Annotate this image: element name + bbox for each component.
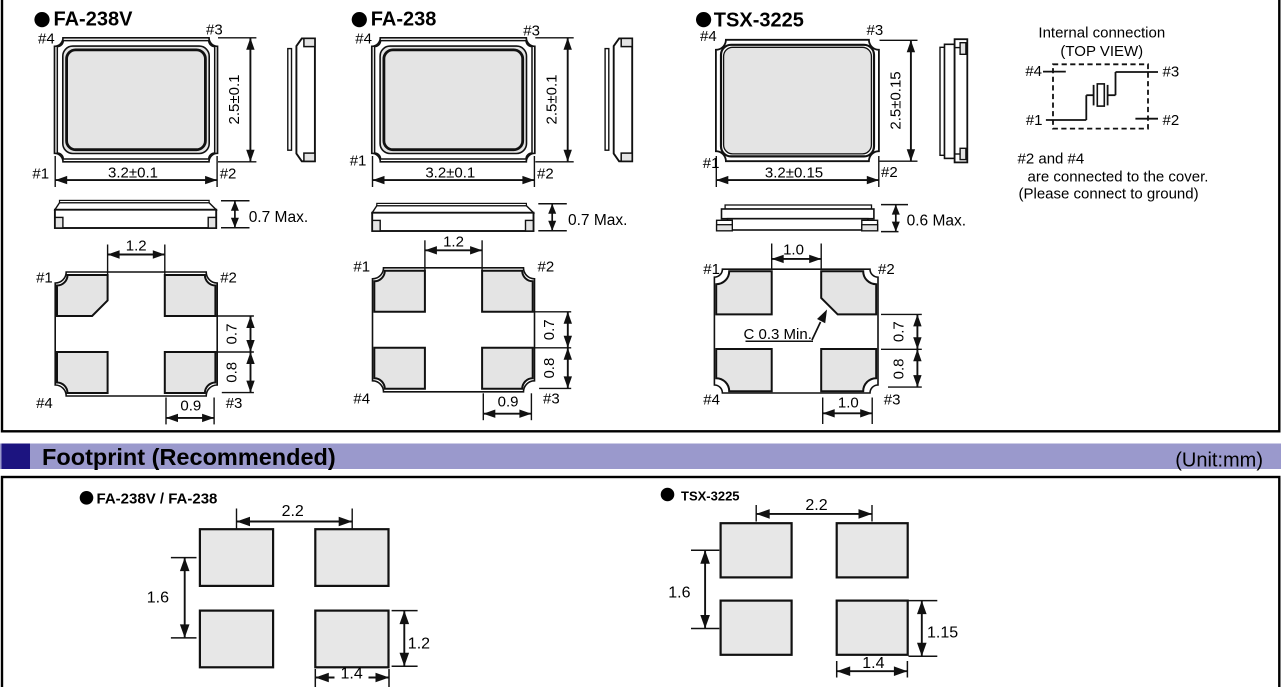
svg-text:#3: #3: [206, 21, 223, 38]
svg-text:#2: #2: [1163, 112, 1180, 129]
svg-text:0.6 Max.: 0.6 Max.: [907, 212, 966, 229]
svg-text:1.2: 1.2: [443, 233, 464, 250]
svg-text:2.5±0.1: 2.5±0.1: [543, 75, 560, 125]
svg-text:#1: #1: [32, 166, 49, 183]
svg-text:#3: #3: [1163, 64, 1180, 81]
svg-text:#4: #4: [355, 31, 372, 48]
svg-text:2.2: 2.2: [805, 497, 827, 514]
svg-text:1.6: 1.6: [668, 585, 690, 602]
svg-text:0.7 Max.: 0.7 Max.: [249, 209, 308, 226]
svg-text:#3: #3: [884, 391, 901, 408]
svg-text:TSX-3225: TSX-3225: [714, 9, 804, 31]
svg-text:(TOP VIEW): (TOP VIEW): [1060, 43, 1143, 60]
svg-text:1.0: 1.0: [838, 395, 859, 412]
svg-text:(Please connect to ground): (Please connect to ground): [1019, 186, 1199, 203]
svg-text:#1: #1: [36, 270, 53, 287]
svg-text:0.8: 0.8: [891, 358, 908, 379]
svg-text:0.7: 0.7: [224, 324, 241, 345]
svg-text:0.8: 0.8: [224, 362, 241, 383]
svg-text:0.7 Max.: 0.7 Max.: [568, 212, 627, 229]
svg-text:#3: #3: [543, 391, 560, 408]
svg-text:#3: #3: [226, 395, 243, 412]
svg-text:#2 and #4: #2 and #4: [1018, 151, 1085, 168]
svg-text:2.5±0.1: 2.5±0.1: [226, 75, 243, 125]
svg-text:are connected to the cover.: are connected to the cover.: [1028, 169, 1209, 186]
svg-text:C 0.3 Min.: C 0.3 Min.: [744, 326, 812, 343]
svg-text:1.0: 1.0: [783, 242, 804, 259]
svg-text:0.7: 0.7: [891, 321, 908, 342]
svg-text:3.2±0.15: 3.2±0.15: [765, 165, 823, 182]
svg-text:3.2±0.1: 3.2±0.1: [108, 165, 158, 182]
svg-text:2.2: 2.2: [282, 503, 304, 520]
svg-text:#2: #2: [878, 261, 895, 278]
svg-text:2.5±0.15: 2.5±0.15: [887, 71, 904, 129]
svg-text:FA-238V / FA-238: FA-238V / FA-238: [97, 491, 218, 508]
svg-text:#4: #4: [36, 395, 53, 412]
svg-text:#1: #1: [353, 259, 370, 276]
svg-text:#2: #2: [537, 166, 554, 183]
svg-text:#4: #4: [703, 391, 720, 408]
svg-text:#4: #4: [700, 28, 717, 45]
svg-text:1.4: 1.4: [340, 666, 362, 683]
svg-text:Footprint (Recommended): Footprint (Recommended): [42, 444, 336, 470]
svg-text:1.2: 1.2: [408, 635, 430, 652]
svg-text:#2: #2: [538, 259, 555, 276]
svg-text:0.9: 0.9: [498, 393, 519, 410]
svg-text:1.4: 1.4: [862, 655, 884, 672]
svg-text:Internal connection: Internal connection: [1038, 25, 1165, 42]
svg-text:#1: #1: [703, 261, 720, 278]
svg-text:0.9: 0.9: [180, 398, 201, 415]
svg-text:1.15: 1.15: [927, 625, 958, 642]
svg-text:0.8: 0.8: [541, 358, 558, 379]
svg-text:#1: #1: [350, 153, 367, 170]
svg-text:#4: #4: [38, 31, 55, 48]
svg-text:(Unit:mm): (Unit:mm): [1175, 450, 1263, 472]
svg-text:#3: #3: [867, 22, 884, 39]
svg-text:#1: #1: [703, 155, 720, 172]
svg-text:#2: #2: [220, 270, 237, 287]
svg-text:FA-238: FA-238: [371, 9, 437, 31]
svg-text:#2: #2: [220, 166, 237, 183]
svg-text:TSX-3225: TSX-3225: [681, 488, 740, 503]
svg-text:0.7: 0.7: [541, 319, 558, 340]
svg-text:FA-238V: FA-238V: [54, 9, 134, 31]
svg-text:#1: #1: [1026, 112, 1043, 129]
svg-text:#4: #4: [1025, 63, 1042, 80]
svg-text:#4: #4: [353, 391, 370, 408]
svg-text:3.2±0.1: 3.2±0.1: [425, 165, 475, 182]
svg-text:1.2: 1.2: [126, 238, 147, 255]
svg-text:1.6: 1.6: [147, 590, 169, 607]
svg-text:#2: #2: [881, 164, 898, 181]
